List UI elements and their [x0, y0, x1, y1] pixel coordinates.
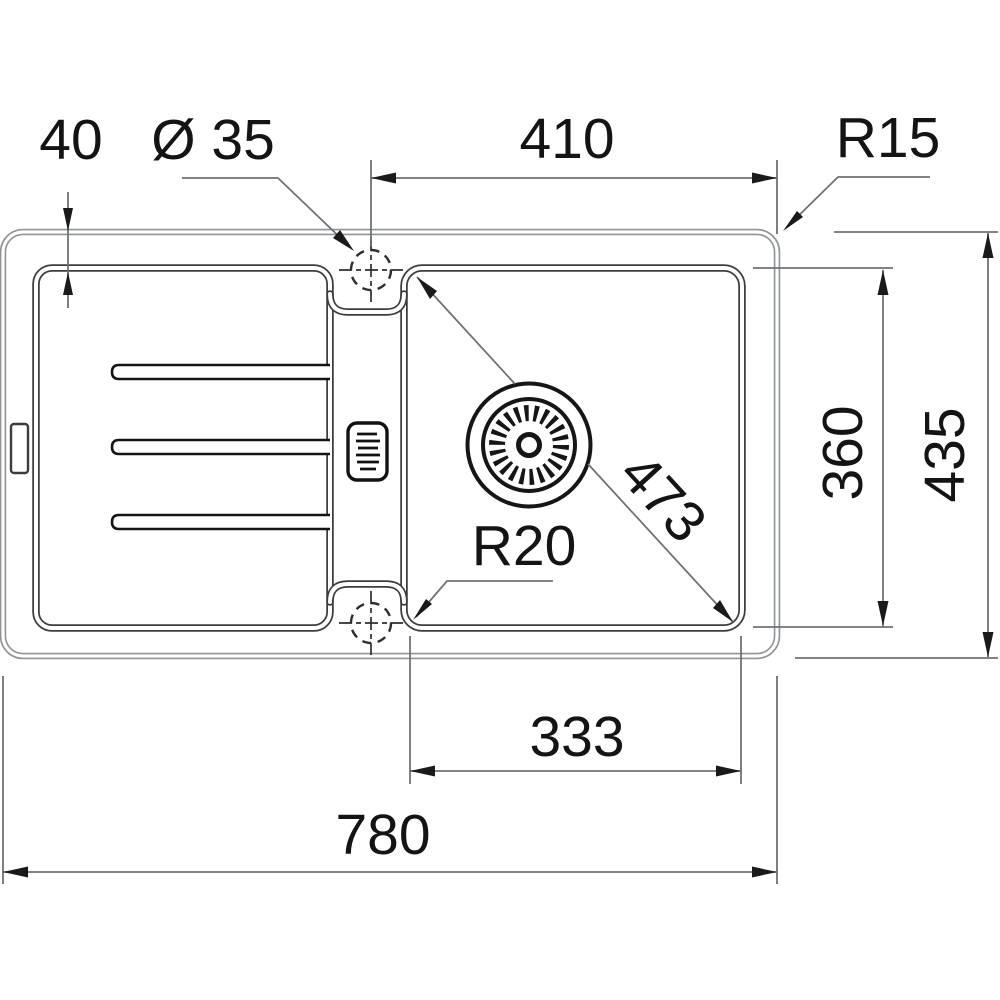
label-deck-margin: 40: [39, 108, 102, 172]
label-tap-hole-diameter: Ø 35: [151, 108, 275, 172]
strainer-ticks: [497, 413, 561, 477]
drainboard-ridges: [112, 365, 330, 529]
brand-badge: [348, 423, 387, 480]
label-overall-depth: 435: [913, 407, 977, 502]
overflow-slot: [11, 424, 28, 473]
ridge-3: [112, 515, 330, 529]
label-bowl-diagonal: 473: [607, 441, 718, 554]
label-outer-corner-radius: R15: [836, 106, 941, 170]
tap-hole-bottom: [339, 591, 403, 655]
dim-overall-length: 780: [3, 676, 777, 884]
sink-technical-drawing: 40 Ø 35 410 R15: [0, 0, 1000, 1000]
label-bowl-depth: 360: [811, 405, 875, 500]
dim-tap-hole-to-edge: 410: [371, 107, 777, 246]
label-bowl-corner-radius: R20: [472, 514, 577, 578]
label-overall-length: 780: [335, 803, 430, 867]
ridge-2: [112, 440, 330, 454]
top-channel: [330, 294, 404, 312]
label-bowl-width: 333: [529, 705, 624, 769]
dim-deck-margin: 40: [39, 108, 102, 308]
dim-bowl-corner-radius: R20: [413, 514, 576, 620]
bottom-channel: [330, 584, 404, 602]
label-tap-hole-to-edge: 410: [519, 107, 614, 171]
dimensions: 40 Ø 35 410 R15: [3, 106, 998, 884]
sink-outline: [3, 232, 777, 656]
dim-outer-corner-radius: R15: [783, 106, 940, 231]
ridge-1: [112, 365, 330, 379]
drain-strainer: [468, 384, 591, 507]
